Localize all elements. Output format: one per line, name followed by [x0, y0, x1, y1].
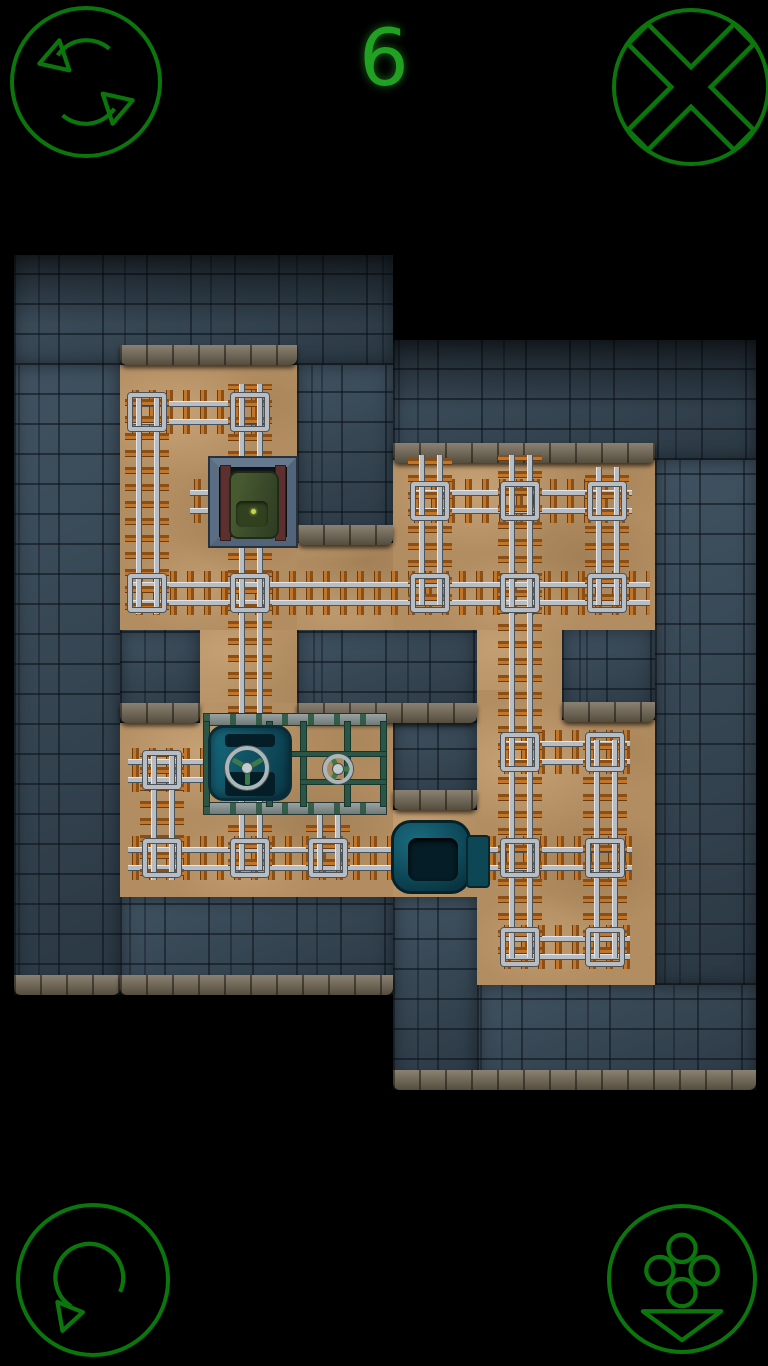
track-junction-frame[interactable]: [128, 574, 166, 612]
rail-track-horizontal[interactable]: [128, 836, 632, 880]
game-board: [0, 0, 768, 1366]
wall-edge: [120, 703, 200, 723]
green-wagon[interactable]: [229, 471, 279, 539]
track-junction-frame[interactable]: [501, 839, 539, 877]
track-junction-frame[interactable]: [501, 482, 539, 520]
rotate-ccw-arrow-icon: [32, 1219, 154, 1341]
track-junction-frame[interactable]: [586, 928, 624, 966]
wagon-hood: [236, 501, 268, 527]
track-junction-frame[interactable]: [586, 733, 624, 771]
cargo-coupler: [466, 835, 490, 888]
scaffold-column: [300, 721, 307, 807]
scaffold-beam: [203, 802, 387, 815]
stone-shadow: [14, 255, 393, 325]
stone-tile: [655, 460, 756, 985]
rail-track-vertical[interactable]: [498, 455, 542, 958]
undo-rotate-button[interactable]: [16, 1203, 170, 1357]
track-junction-frame[interactable]: [501, 928, 539, 966]
track-junction-frame[interactable]: [588, 574, 626, 612]
loading-dock: [210, 458, 296, 546]
tank-slot: [225, 734, 275, 747]
scaffold-column: [380, 721, 387, 807]
cargo-machine[interactable]: [391, 820, 471, 894]
stone-shadow: [393, 340, 756, 410]
cargo-hole: [408, 838, 458, 881]
track-junction-frame[interactable]: [128, 393, 166, 431]
valve-wheel-small[interactable]: [323, 754, 353, 784]
track-junction-frame[interactable]: [231, 574, 269, 612]
track-junction-frame[interactable]: [231, 393, 269, 431]
wall-edge: [393, 1070, 756, 1090]
wall-edge: [120, 345, 297, 365]
stone-tile: [14, 365, 120, 995]
stone-tile: [297, 365, 393, 543]
wall-edge: [393, 790, 477, 810]
stone-tile: [393, 897, 477, 1090]
rail-track-horizontal[interactable]: [132, 571, 650, 615]
track-junction-frame[interactable]: [231, 839, 269, 877]
track-junction-frame[interactable]: [501, 733, 539, 771]
track-junction-frame[interactable]: [586, 839, 624, 877]
game-screen: 6: [0, 0, 768, 1366]
track-junction-frame[interactable]: [309, 839, 347, 877]
wall-edge: [297, 525, 393, 545]
tank-machine[interactable]: [203, 713, 387, 815]
valve-wheel-large[interactable]: [225, 746, 269, 790]
track-junction-frame[interactable]: [143, 839, 181, 877]
wagon-light: [251, 509, 256, 514]
controls-button[interactable]: [607, 1204, 757, 1354]
track-junction-frame[interactable]: [588, 482, 626, 520]
moves-counter: 6: [0, 14, 768, 104]
track-junction-frame[interactable]: [411, 574, 449, 612]
wall-edge: [120, 975, 393, 995]
track-junction-frame[interactable]: [143, 751, 181, 789]
wall-edge: [562, 702, 655, 722]
track-junction-frame[interactable]: [411, 482, 449, 520]
track-junction-frame[interactable]: [501, 574, 539, 612]
wall-edge: [14, 975, 120, 995]
gamepad-buttons-icon: [614, 1211, 750, 1347]
